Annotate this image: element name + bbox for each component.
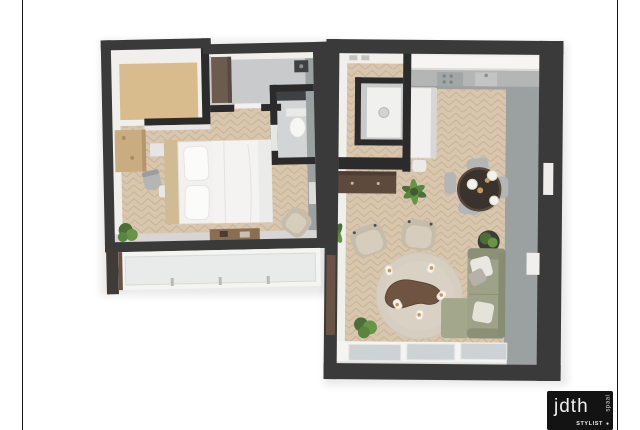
closet-wall-bottom [355,139,403,145]
window-bay-cap-left [106,248,119,294]
armchair-2 [400,218,437,252]
partition-hall-a [210,105,234,113]
left-wall-panel [326,255,336,335]
cooktop [437,72,463,86]
entry-nook-mat [117,62,198,120]
outer-wall-right [537,41,564,381]
double-bed [164,138,273,224]
window-pane-2 [407,344,455,360]
vent-grille-1 [349,55,357,60]
window-wall [337,341,507,365]
closet-wall-top [355,77,403,83]
floor-plan-svg [0,0,640,430]
sideboard [336,171,396,194]
mullion-3 [267,276,270,284]
partition-nook-bottom [144,117,210,125]
window-bay-liner [118,252,123,290]
outer-wall-top [326,39,563,55]
wood-shelf-unit [115,130,147,173]
logo-brand-text: jdth [554,396,589,418]
right-wall-door [526,253,539,275]
sofa-chaise [441,298,469,338]
logo-vertical-text: spaai [605,394,611,411]
sofa-back [498,253,506,337]
jdth-logo: jdth spaai STYLIST ● [547,391,613,430]
nightstand [150,143,164,156]
mullion-1 [171,278,174,286]
bedroom-radiator [309,182,316,204]
window-pane-1 [349,344,401,360]
tall-cabinet-side [430,88,437,158]
closet-wall-left [355,77,362,145]
bed-pillow-1 [183,146,209,181]
toilet-bowl [289,117,305,137]
partition-entry-living [338,157,410,170]
bedroom-door-leaf [235,103,261,109]
sofa-pillow-3 [471,301,494,324]
entry-closet [355,77,404,145]
logo-dot-icon: ● [606,421,609,427]
pendant-gold [485,178,490,183]
floor-plan-image: jdth spaai STYLIST ● [0,0,640,430]
kitchen-stool [412,160,426,172]
pendant-lamp-3 [490,196,499,205]
toilet-tank [286,108,308,116]
faucet [484,74,488,78]
pendant-lamp-2 [467,179,477,189]
wardrobe-cabinet [211,57,232,103]
bathroom-door-opening [270,125,278,151]
partition-entry-kitchen [402,42,411,172]
table-decor [477,187,483,193]
window-pane-3 [461,343,507,359]
bedroom-suite [101,36,338,295]
outer-wall-bottom [324,363,561,381]
logo-tagline: STYLIST [576,421,603,427]
mullion-2 [219,277,222,285]
bed-pillow-2 [185,185,209,219]
dining-chair-left [444,172,456,194]
right-wall-niche [543,163,553,195]
shower-strip [277,90,306,101]
living-unit [324,39,564,381]
duvet-edge [258,140,273,222]
frame-border-right [617,0,618,430]
washer-door [379,107,389,117]
bathroom-wall-bottom [271,157,315,165]
vent-grille-2 [361,55,369,60]
wall-sink [294,60,308,72]
frame-border-left [22,0,23,430]
